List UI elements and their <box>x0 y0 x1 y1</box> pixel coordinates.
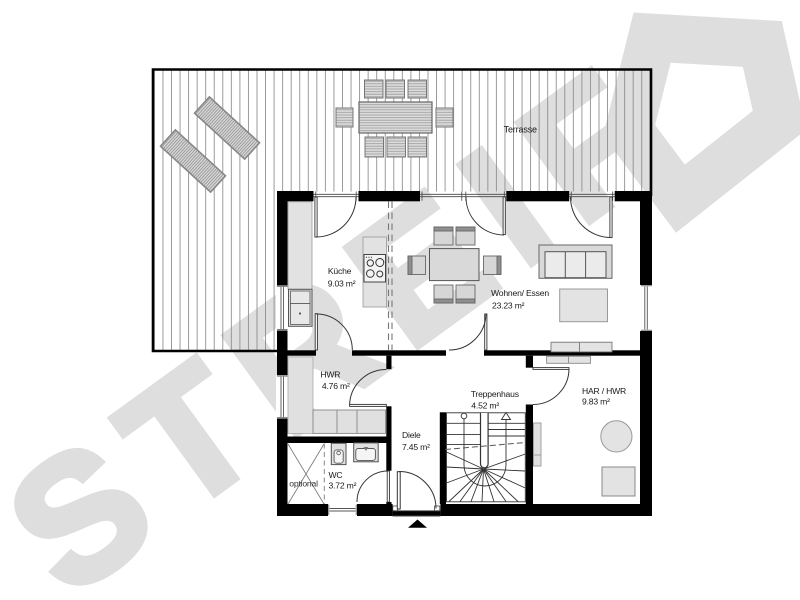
svg-text:Wohnen/ Essen: Wohnen/ Essen <box>491 288 549 298</box>
svg-text:9.03 m²: 9.03 m² <box>328 279 356 289</box>
svg-text:7.45 m²: 7.45 m² <box>402 442 430 452</box>
svg-text:3.72 m²: 3.72 m² <box>329 481 357 491</box>
svg-text:Terrasse: Terrasse <box>504 124 537 134</box>
svg-text:optional: optional <box>289 478 318 488</box>
svg-text:9.83 m²: 9.83 m² <box>582 397 610 407</box>
svg-text:Küche: Küche <box>328 266 352 276</box>
svg-text:4.52 m²: 4.52 m² <box>471 400 499 410</box>
svg-text:HAR / HWR: HAR / HWR <box>582 386 626 396</box>
svg-text:4.76 m²: 4.76 m² <box>322 381 350 391</box>
svg-text:23.23 m²: 23.23 m² <box>492 301 525 311</box>
svg-text:HWR: HWR <box>320 370 340 380</box>
svg-text:WC: WC <box>329 470 343 480</box>
svg-text:Treppenhaus: Treppenhaus <box>471 389 519 399</box>
svg-text:Diele: Diele <box>402 430 421 440</box>
